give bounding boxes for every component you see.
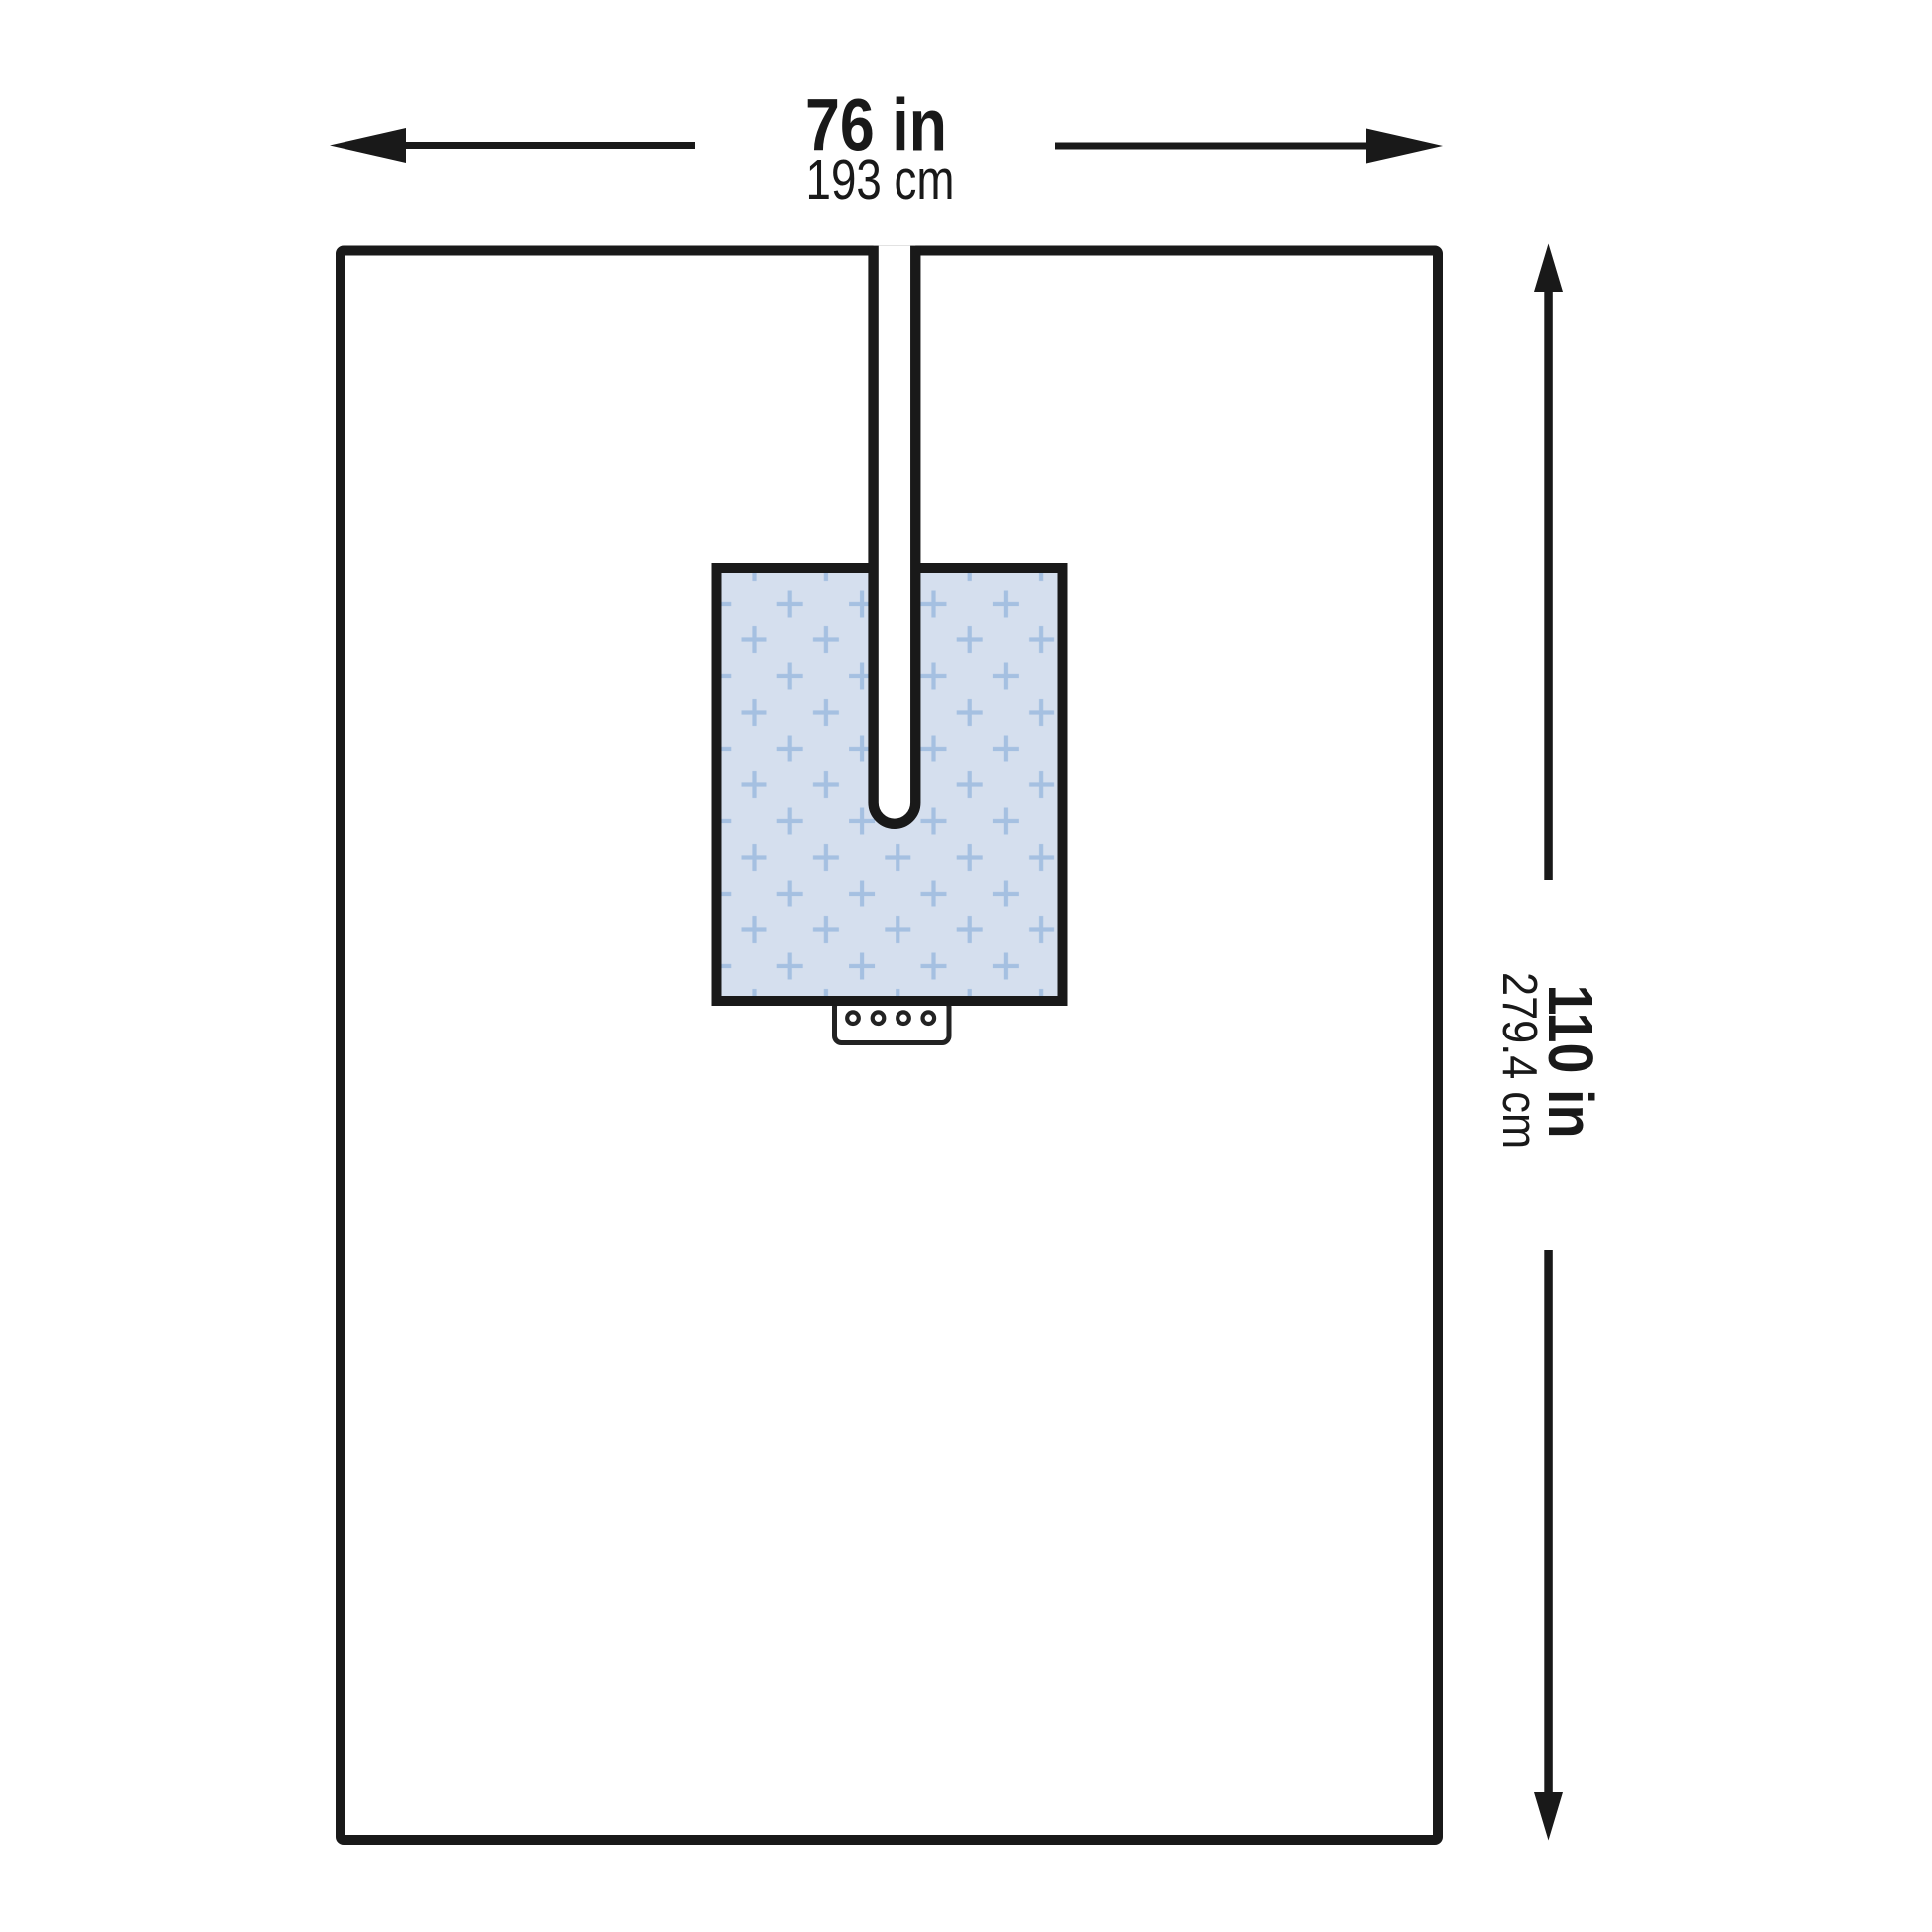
svg-text:193 cm: 193 cm — [806, 148, 955, 211]
svg-text:279.4 cm: 279.4 cm — [1492, 972, 1546, 1149]
